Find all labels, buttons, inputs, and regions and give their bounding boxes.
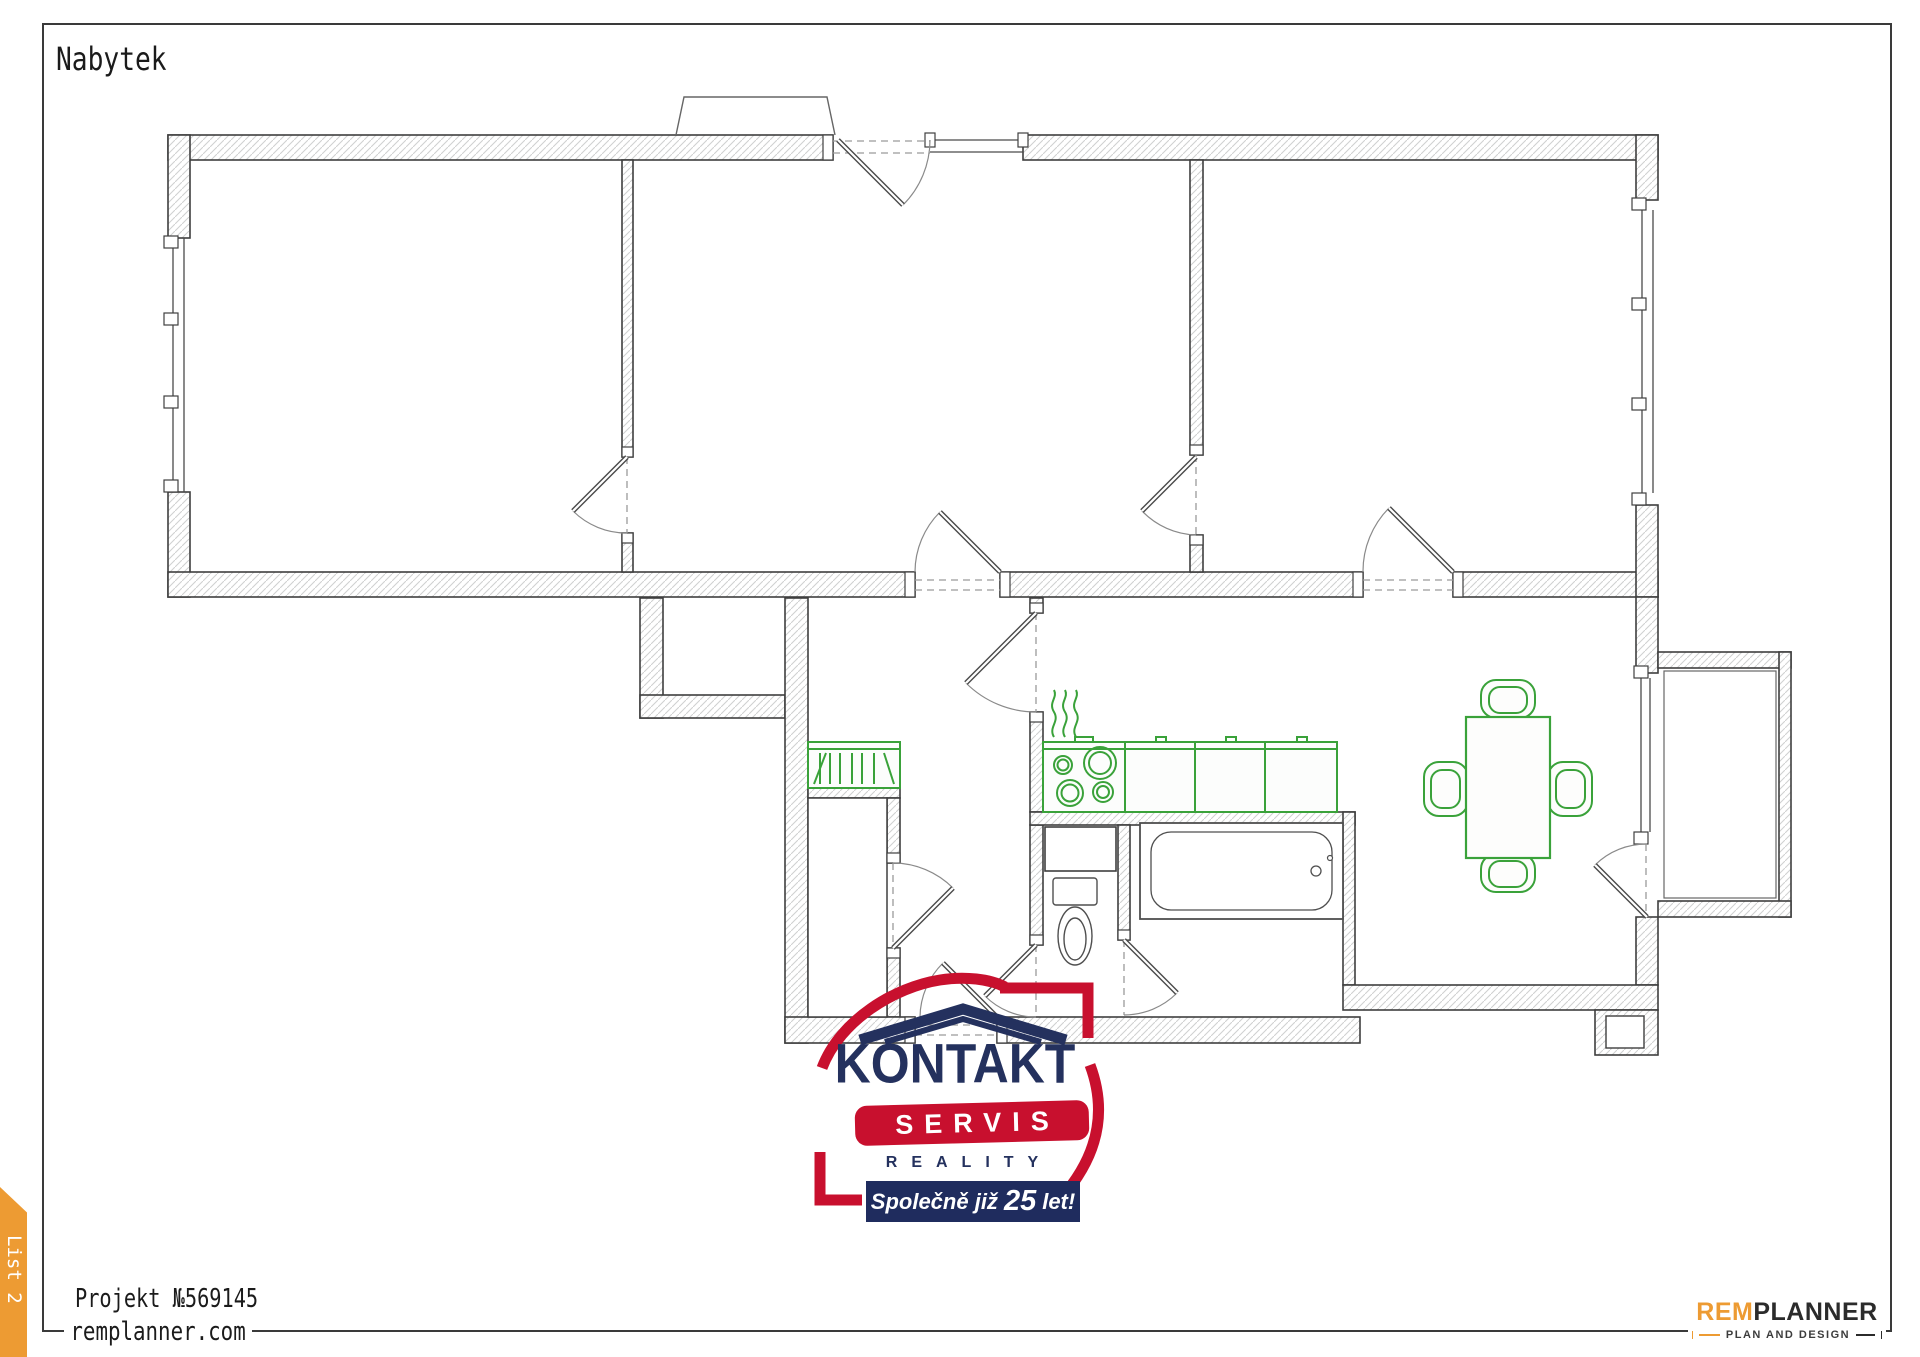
watermark-banner: Společně již 25 let! [866, 1181, 1080, 1222]
dining-table [1466, 717, 1550, 858]
windows [173, 140, 1653, 832]
vent-duct [1606, 1016, 1644, 1048]
balcony-top [676, 97, 835, 135]
banner-suffix: let! [1042, 1189, 1075, 1215]
washing-machine [1045, 827, 1116, 871]
bathtub [1140, 823, 1343, 919]
walls [168, 135, 1791, 1055]
sheet-tab[interactable]: List 2 [0, 1187, 27, 1357]
watermark-subtitle: SERVIS [884, 1105, 1060, 1141]
tagline-right-tick [1881, 1331, 1882, 1339]
tagline-left-tick [1692, 1331, 1693, 1339]
tagline-left-dash [1699, 1334, 1720, 1336]
sheet: Nabytek [0, 0, 1920, 1357]
remplanner-tagline: PLAN AND DESIGN [1692, 1329, 1882, 1341]
tagline-right-dash [1856, 1334, 1875, 1336]
drying-rack [808, 742, 900, 788]
banner-prefix: Společně již [871, 1189, 998, 1215]
remplanner-wordmark: REMPLANNER [1692, 1298, 1882, 1327]
kitchen-counter [1043, 737, 1337, 812]
steam-icon [1052, 690, 1078, 737]
kontakt-servis-watermark: KONTAKT SERVIS REALITY Společně již 25 l… [800, 965, 1110, 1245]
watermark-subtitle-badge: SERVIS [855, 1100, 1090, 1146]
remplanner-planner: PLANNER [1753, 1298, 1877, 1326]
banner-number: 25 [1004, 1185, 1036, 1218]
tagline-text: PLAN AND DESIGN [1726, 1329, 1850, 1341]
loggia [1664, 671, 1776, 898]
watermark-category: REALITY [800, 1154, 1124, 1172]
remplanner-logo: REMPLANNER PLAN AND DESIGN [1688, 1296, 1886, 1347]
toilet [1053, 878, 1097, 965]
sheet-tab-label: List 2 [3, 1235, 25, 1304]
website-label: remplanner.com [64, 1317, 252, 1347]
remplanner-rem: REM [1696, 1298, 1753, 1326]
window-connectors [164, 133, 1648, 844]
watermark-title: KONTAKT [800, 1031, 1110, 1096]
